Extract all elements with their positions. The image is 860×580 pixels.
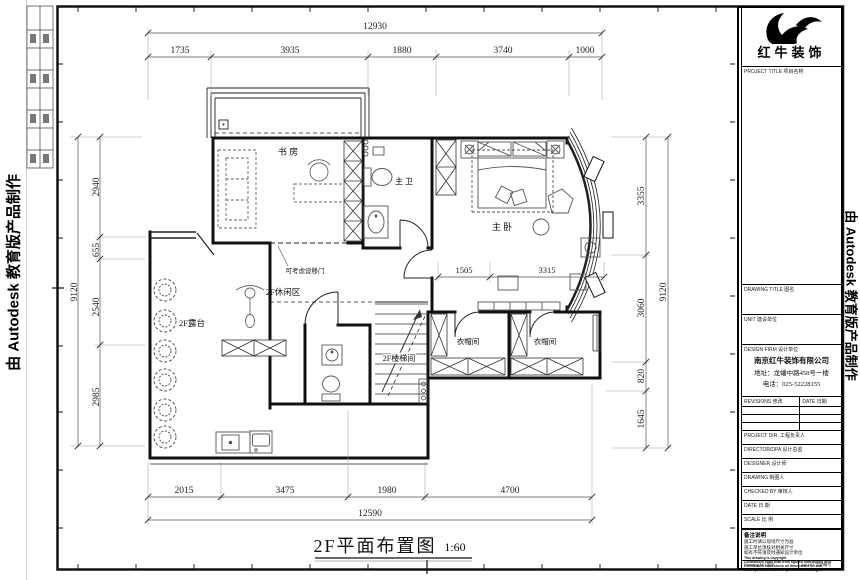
toilet	[364, 168, 392, 186]
label-study: 书 房	[278, 146, 298, 157]
autodesk-watermark-left: 由 Autodesk 教育版产品制作	[3, 143, 24, 403]
label-master-bath: 主 卫	[395, 176, 413, 186]
dim-bottom-1: 2015	[175, 486, 194, 496]
dim-top-1: 1735	[171, 46, 190, 56]
row-drawing-label: DRAWING 制图人	[742, 473, 841, 481]
terrace-plants	[154, 279, 176, 448]
row-checked: CHECKED BY 审核人	[742, 486, 841, 500]
bedroom-stools	[498, 274, 586, 290]
design-firm-label: DESIGN FIRM 设计单位	[742, 345, 841, 353]
dim-right-1: 3355	[637, 186, 647, 205]
numbers-section: Drawing NO 图号 Job NO 工程编号	[742, 560, 841, 570]
row-director-label: DIRECTOR/DPA 设计总监	[742, 445, 841, 453]
job-no-label: Job NO 工程编号	[798, 561, 841, 568]
dim-top-3: 1880	[393, 46, 412, 56]
unit-section: UNIT 建设单位	[742, 314, 841, 344]
row-drawing: DRAWING 制图人	[742, 472, 841, 486]
bath-sink	[364, 206, 388, 238]
sliding-door-leader	[278, 246, 288, 266]
dim-left-4: 2985	[92, 387, 102, 406]
drawing-title-label: DRAWING TITLE 图名	[742, 285, 841, 293]
firm-address: 地址：龙蟠中路458号一楼	[742, 367, 841, 377]
dim-top-4: 3740	[494, 46, 513, 56]
revision-strip-table	[27, 6, 53, 168]
notes-section: 备注说明 施工时请以现场尺寸为准 施工单位须核对相关尺寸 如有不符请及时通知设计…	[742, 528, 841, 560]
firm-phone: 电话：025-52228155	[742, 378, 841, 388]
unit-label: UNIT 建设单位	[742, 315, 841, 323]
project-title-section: PROJECT TITLE 项目名称	[742, 66, 841, 284]
dim-top-total: 12930	[363, 22, 387, 32]
wc-sink	[322, 345, 342, 365]
walls	[150, 138, 600, 458]
label-stairwell: 2F楼梯间	[383, 353, 415, 363]
floor-plan-drawing: 12930 1735 3935 1880 3740 1000 9120 2940…	[0, 0, 860, 580]
gym-equipment	[236, 286, 264, 328]
company-logo-icon	[760, 10, 824, 44]
label-master-bedroom: 主 卧	[492, 221, 512, 232]
dim-bottom-4: 4700	[501, 486, 520, 496]
dimension-texts: 12930 1735 3935 1880 3740 1000 9120 2940…	[70, 22, 669, 519]
row-director: DIRECTOR/DPA 设计总监	[742, 444, 841, 458]
dim-left-1: 2940	[92, 177, 102, 196]
micro-text-marks	[30, 34, 49, 163]
dim-right-4: 1645	[637, 409, 647, 428]
room-labels: 书 房 主 卫 主 卧 2F休闲区 2F露台 2F楼梯间 衣帽间 衣帽间 可考虑…	[179, 146, 556, 363]
label-terrace: 2F露台	[179, 318, 205, 328]
revisions-section: REVISIONS 修改 DATE 日期	[742, 396, 841, 430]
dim-right-total: 9120	[659, 282, 669, 301]
design-firm-section: DESIGN FIRM 设计单位 南京红牛装饰有限公司 地址：龙蟠中路458号一…	[742, 344, 841, 396]
study-chair	[308, 160, 330, 181]
bath-door	[400, 220, 428, 248]
autodesk-watermark-right: 由 Autodesk 教育版产品制作	[843, 166, 860, 426]
secondary-walls	[150, 232, 428, 464]
company-name: 红牛装饰	[742, 42, 841, 61]
bedroom-door	[404, 250, 432, 278]
dim-bedroom-1: 1505	[456, 265, 473, 275]
dim-bedroom-2: 3315	[539, 265, 556, 275]
label-sliding-door: 可考虑设移门	[286, 266, 325, 275]
label-cloakroom-right: 衣帽间	[534, 336, 557, 346]
company-logo-area: 红牛装饰	[742, 8, 841, 66]
study-desk	[294, 184, 344, 202]
row-scale: SCALE 比 例	[742, 514, 841, 528]
row-date-label: DATE 日 期	[742, 501, 841, 509]
drawing-title-text: 2F平面布置图	[313, 536, 436, 556]
revisions-label: REVISIONS 修改	[742, 397, 785, 405]
project-title-label: PROJECT TITLE 项目名称	[742, 67, 841, 75]
dim-left-3: 2540	[92, 297, 102, 316]
row-scale-label: SCALE 比 例	[742, 515, 841, 523]
row-project-dir-label: PROJECT DIR. 工程负责人	[742, 431, 841, 439]
row-designer: DESIGNER 设计师	[742, 458, 841, 472]
wc-door	[305, 292, 338, 325]
dim-bottom-2: 3475	[276, 486, 295, 496]
bedroom-closet	[436, 140, 456, 195]
dim-bottom-3: 1980	[378, 486, 397, 496]
terrace-door-leaf	[197, 233, 214, 255]
title-block: 红牛装饰 PROJECT TITLE 项目名称 DRAWING TITLE 图名…	[737, 6, 843, 570]
revision-date-label: DATE 日期	[800, 397, 828, 405]
furniture	[154, 140, 600, 453]
leisure-window-sill	[222, 340, 286, 356]
study-bath-cabinet	[344, 141, 362, 241]
bed	[461, 141, 564, 212]
row-date: DATE 日 期	[742, 500, 841, 514]
tv-console	[478, 302, 560, 310]
drawing-scale-text: 1:60	[444, 540, 465, 554]
row-designer-label: DESIGNER 设计师	[742, 459, 841, 467]
drawing-title: 2F平面布置图 1:60	[313, 536, 472, 561]
cloakroom-right-door	[530, 312, 555, 337]
cloakroom-left-door	[455, 312, 480, 337]
stair-arrow	[413, 310, 422, 320]
cad-sheet: 12930 1735 3935 1880 3740 1000 9120 2940…	[0, 0, 860, 580]
label-cloakroom-left: 衣帽间	[457, 336, 480, 346]
dim-right-2: 3060	[637, 298, 647, 317]
dim-left-total: 9120	[70, 282, 80, 301]
bay-window	[567, 128, 613, 322]
dim-bottom-total: 12590	[358, 509, 382, 519]
firm-name: 南京红牛装饰有限公司	[742, 355, 841, 366]
row-project-dir: PROJECT DIR. 工程负责人	[742, 430, 841, 444]
dim-left-2: 655	[92, 243, 102, 258]
dim-top-5: 1000	[576, 46, 595, 56]
wc-toilet	[322, 376, 340, 401]
dim-top-2: 3935	[281, 46, 300, 56]
drawing-title-section: DRAWING TITLE 图名	[742, 284, 841, 314]
notes-title: 备注说明	[742, 530, 841, 539]
study-sofa	[218, 150, 256, 228]
drawing-no-label: Drawing NO 图号	[742, 561, 798, 568]
terrace-counter	[216, 431, 272, 453]
row-checked-label: CHECKED BY 审核人	[742, 487, 841, 495]
label-leisure: 2F休闲区	[266, 287, 301, 297]
study-bay-window	[207, 88, 369, 138]
dim-right-3: 820	[637, 369, 647, 384]
bath-shelf	[364, 140, 384, 156]
